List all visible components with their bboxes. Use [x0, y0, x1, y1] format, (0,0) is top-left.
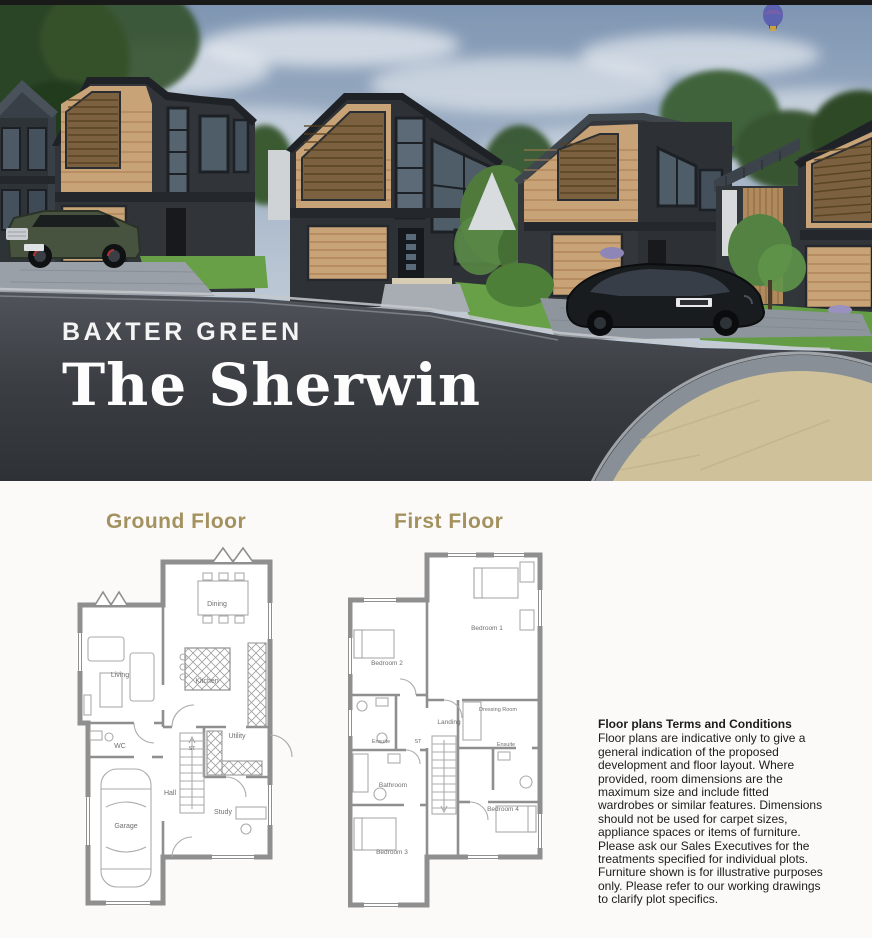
brochure-page: BAXTER GREEN The Sherwin Ground Floor Fi…: [0, 0, 872, 938]
room-label-study: Study: [214, 809, 232, 816]
terms-heading: Floor plans Terms and Conditions: [598, 718, 870, 731]
terms-line: wardrobes or similar features. Dimension…: [598, 799, 870, 812]
top-bar: [0, 0, 872, 5]
terms-line: appliance spaces or items of furniture.: [598, 826, 870, 839]
room-label-dressing-room: Dressing Room: [479, 707, 517, 713]
development-photo: BAXTER GREEN The Sherwin: [0, 0, 872, 481]
car-black: [567, 264, 764, 336]
room-label-wc: WC: [114, 743, 126, 750]
room-label-bedroom4: Bedroom 4: [487, 806, 519, 813]
terms-line: treatments specified for individual plot…: [598, 853, 870, 866]
terms-line: maximum size and include fitted: [598, 786, 870, 799]
house-type-name: The Sherwin: [62, 351, 481, 419]
hero-title-block: BAXTER GREEN The Sherwin: [62, 318, 481, 419]
terms-line: development and floor layout. Where: [598, 759, 870, 772]
terms-and-conditions: Floor plans Terms and Conditions Floor p…: [598, 718, 870, 907]
terms-body: Floor plans are indicative only to give …: [598, 732, 870, 906]
terms-line: Please ask our Sales Executives for the: [598, 840, 870, 853]
first-floor-plan: Bedroom 1 Bedroom 2 Dressing Room Landin…: [348, 550, 548, 914]
room-label-bedroom1: Bedroom 1: [471, 625, 503, 632]
terms-line: general indication of the proposed: [598, 746, 870, 759]
first-floor-heading: First Floor: [394, 510, 503, 534]
terms-line: only. Please refer to our working drawin…: [598, 880, 870, 893]
terms-line: should not be used for carpet sizes,: [598, 813, 870, 826]
ground-floor-heading: Ground Floor: [106, 510, 246, 534]
room-label-utility: Utility: [228, 733, 246, 740]
terms-line: Furniture shown is for illustrative purp…: [598, 866, 870, 879]
room-label-st: ST: [188, 746, 196, 752]
room-label-living: Living: [111, 672, 129, 679]
terms-line: provided, room dimensions are the: [598, 773, 870, 786]
room-label-bedroom2: Bedroom 2: [371, 660, 403, 667]
room-label-landing: Landing: [437, 719, 461, 726]
room-label-bathroom: Bathroom: [379, 782, 407, 789]
ground-floor-plan: Dining Living Kitchen WC Utility ST Hall…: [76, 545, 302, 911]
room-label-ensuite-left: Ensuite: [372, 739, 390, 745]
room-label-hall: Hall: [164, 790, 177, 797]
room-label-dining: Dining: [207, 601, 227, 608]
room-label-garage: Garage: [114, 823, 137, 830]
render-panel: [268, 150, 292, 220]
terms-line: Floor plans are indicative only to give …: [598, 732, 870, 745]
room-label-ensuite-right: Ensuite: [497, 742, 515, 748]
room-label-bedroom3: Bedroom 3: [376, 849, 408, 856]
terms-line: to clarify plot specifics.: [598, 893, 870, 906]
development-name: BAXTER GREEN: [62, 318, 481, 347]
room-label-kitchen: Kitchen: [195, 678, 218, 685]
room-label-st: ST: [414, 739, 422, 745]
